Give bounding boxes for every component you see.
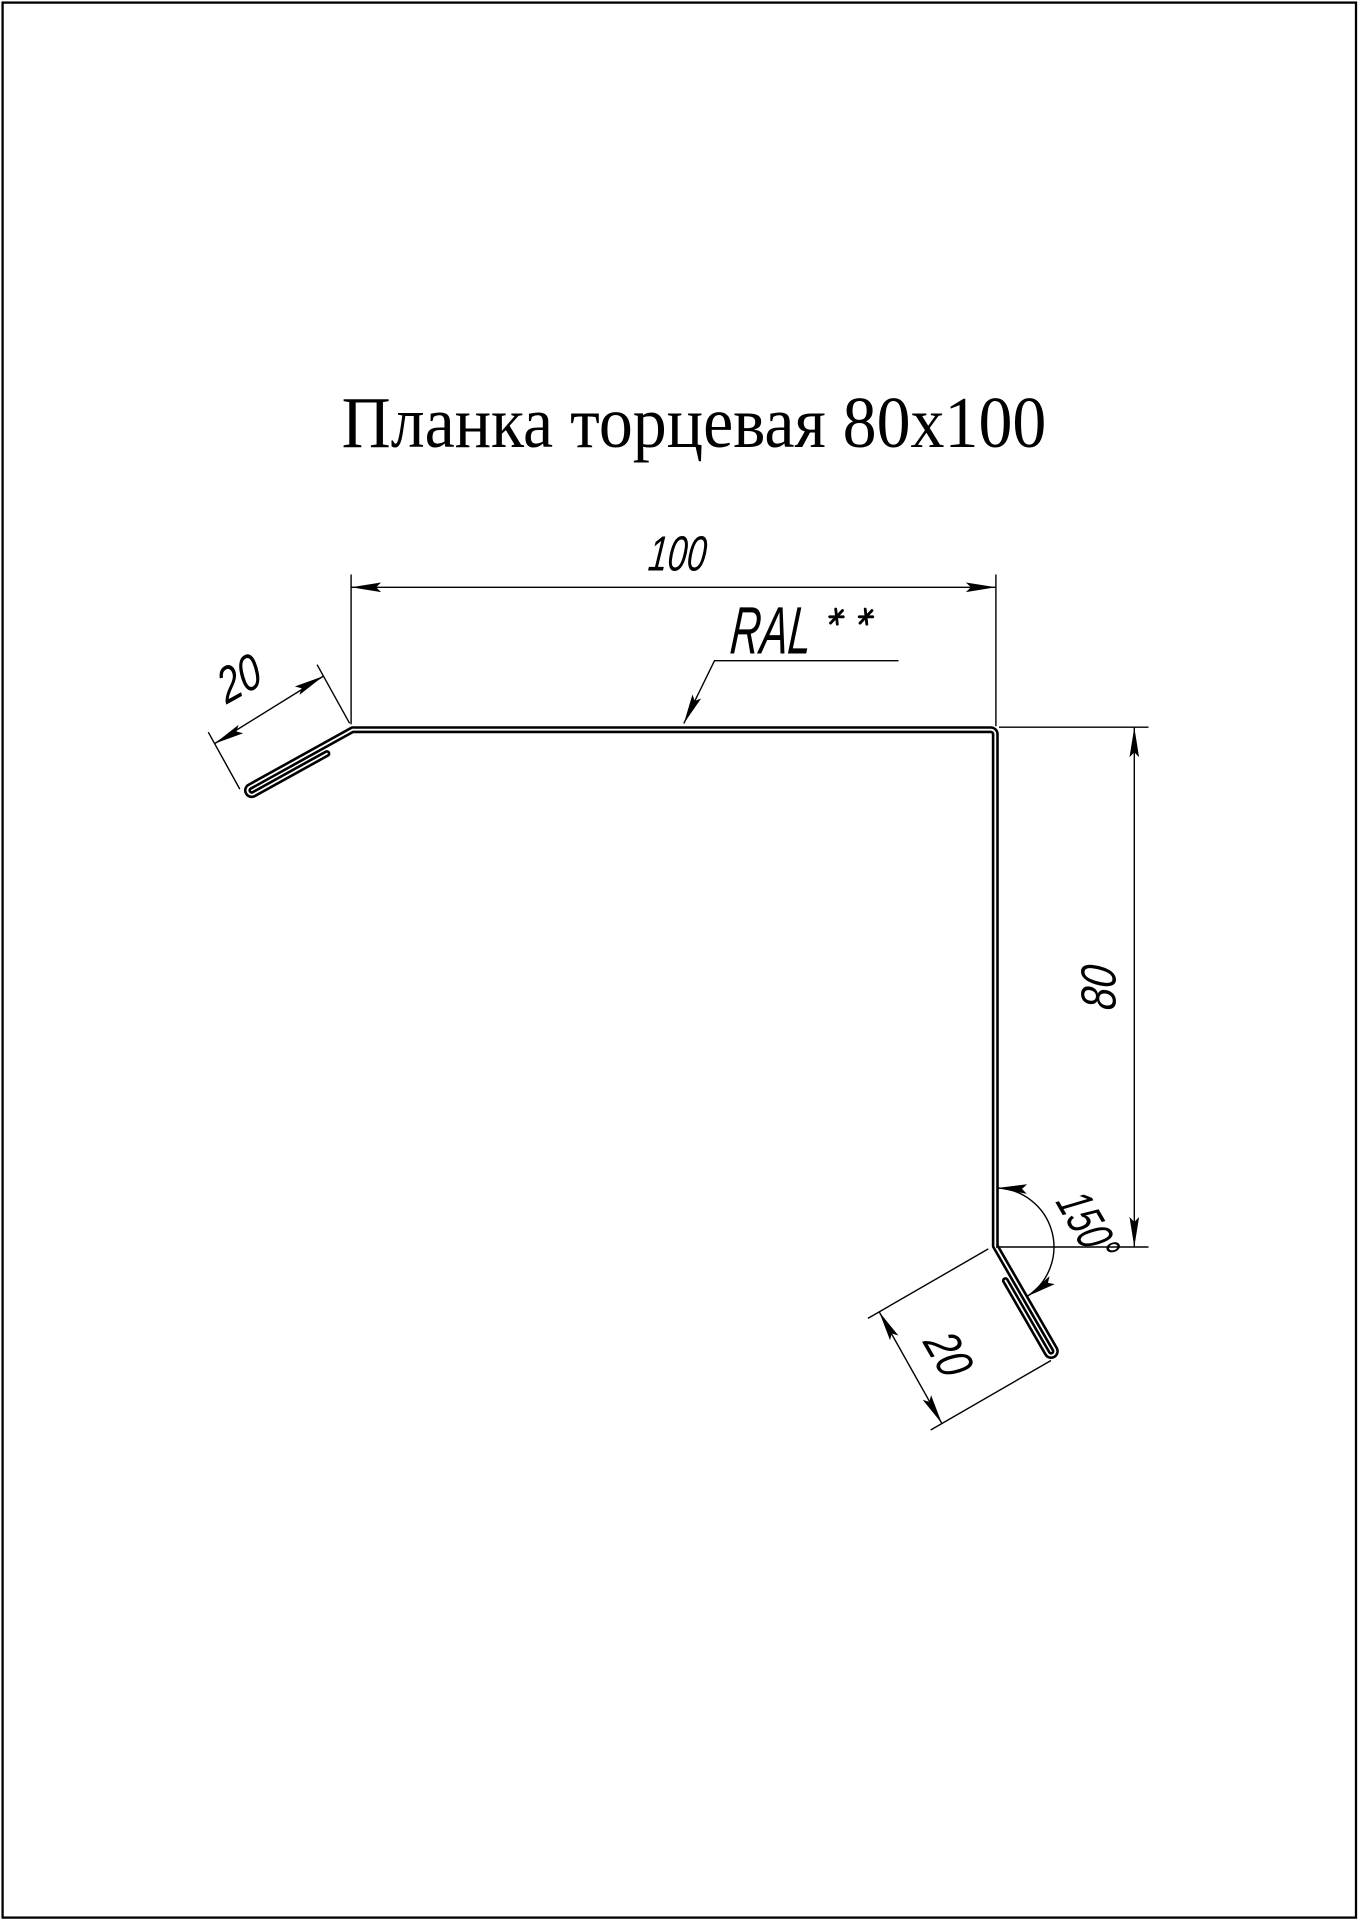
svg-text:100: 100 bbox=[646, 527, 710, 582]
svg-text:RAL: RAL bbox=[728, 592, 815, 668]
svg-text:Планка торцевая 80х100: Планка торцевая 80х100 bbox=[342, 383, 1047, 464]
svg-text:80: 80 bbox=[1070, 962, 1126, 1012]
